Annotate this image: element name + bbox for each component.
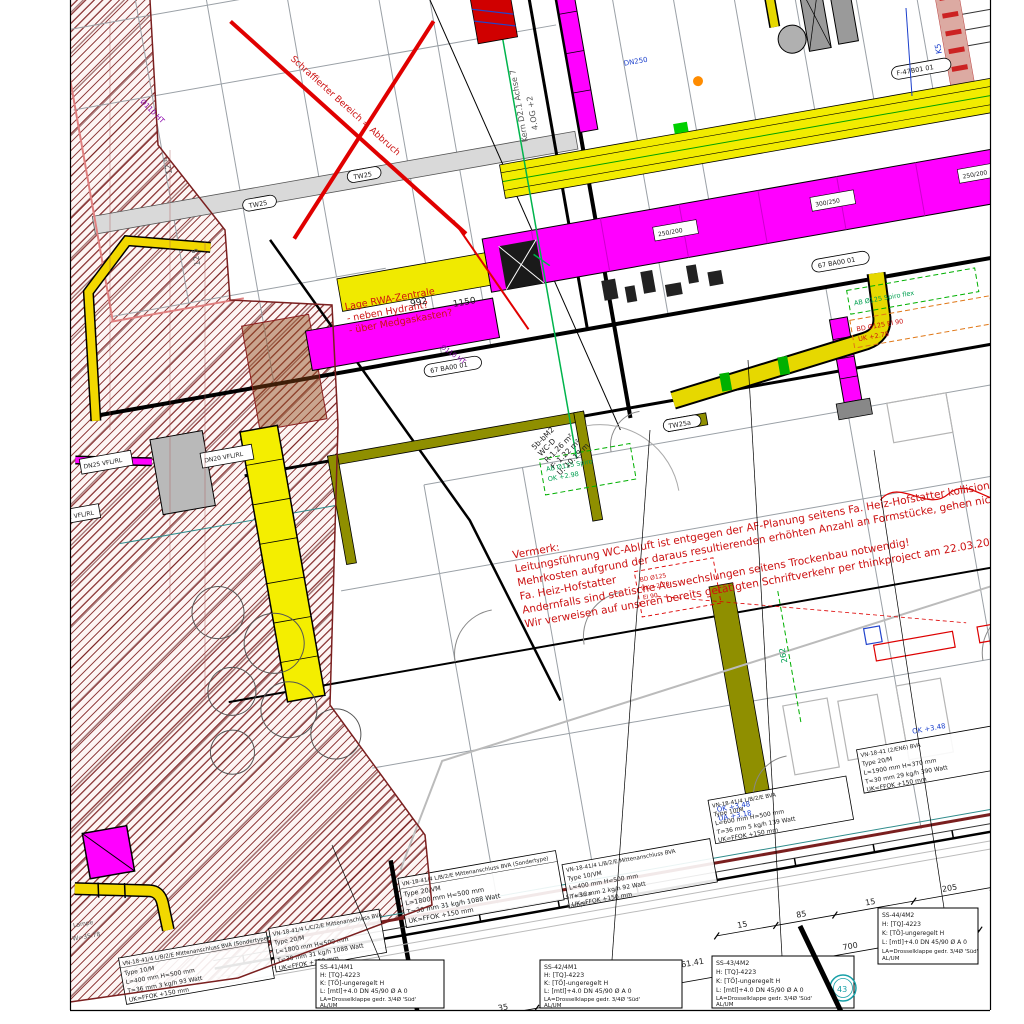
blue-k5: K5: [933, 43, 944, 55]
svg-text:SS-44/4M2: SS-44/4M2: [882, 912, 914, 919]
dim-6141: 61.41: [680, 957, 704, 970]
svg-text:15: 15: [864, 897, 876, 908]
svg-text:205: 205: [941, 882, 958, 894]
cad-plan-viewport: 250/200 300/250 250/200: [0, 0, 1024, 1024]
svg-text:H: [TQ]-4223: H: [TQ]-4223: [882, 921, 921, 928]
svg-text:L: [mtl]+4.0 DN 45/90 Ø A 0: L: [mtl]+4.0 DN 45/90 Ø A 0: [882, 939, 967, 946]
svg-text:SS-43/4M2: SS-43/4M2: [716, 960, 749, 967]
abbruch-note: Schraffierter Bereich = Abbruch: [288, 54, 402, 158]
rotated-plan: 250/200 300/250 250/200: [0, 0, 1024, 1024]
svg-text:700: 700: [842, 941, 859, 953]
radiator-label-6: VN-18-41 (2/EN6) BVA Type 20/M L=1900 mm…: [857, 725, 1008, 794]
yellow-riser-left: [240, 425, 325, 701]
svg-text:L: [mtl]+4.0 DN 45/90 Ø A 0: L: [mtl]+4.0 DN 45/90 Ø A 0: [320, 987, 408, 995]
plan-drawing: 250/200 300/250 250/200: [0, 0, 1024, 1024]
svg-text:LA=Drosselklappe gedr. 3/4Ø 'S: LA=Drosselklappe gedr. 3/4Ø 'Süd': [320, 996, 416, 1003]
svg-text:K: [TÖ]-ungeregelt H: K: [TÖ]-ungeregelt H: [716, 976, 780, 985]
svg-text:AL/UM: AL/UM: [320, 1003, 338, 1009]
radiator-label-1: VN-18-41/4 L/B/2/E Mittenanschluss BVA (…: [118, 932, 276, 1005]
svg-text:85: 85: [796, 909, 808, 920]
svg-text:H: [TQ]-4223: H: [TQ]-4223: [320, 972, 360, 979]
svg-text:K: [TÖ]-ungeregelt H: K: [TÖ]-ungeregelt H: [320, 978, 384, 987]
svg-text:L: [mtl]+4.0 DN 45/90 Ø A 0: L: [mtl]+4.0 DN 45/90 Ø A 0: [716, 986, 804, 994]
gray-leader: [367, 556, 1024, 870]
svg-text:AL/UM: AL/UM: [544, 1003, 562, 1009]
svg-text:SS-41/4M1: SS-41/4M1: [320, 964, 353, 971]
radiator-label-3: VN-18-41/4 L/B/2/E Mittenanschluss BVA (…: [398, 851, 564, 928]
svg-text:LA=Drosselklappe gedr. 3/4Ø 'S: LA=Drosselklappe gedr. 3/4Ø 'Süd': [882, 948, 978, 955]
yellow-pipe-topleft: [39, 227, 254, 528]
dim-262: 262: [778, 647, 790, 664]
misc-4: W=35.78: [72, 931, 101, 943]
misc-3: Lampe: [73, 919, 95, 929]
svg-text:SS-42/4M1: SS-42/4M1: [544, 964, 577, 971]
svg-text:H: [TQ]-4223: H: [TQ]-4223: [716, 969, 756, 976]
svg-text:H: [TQ]-4223: H: [TQ]-4223: [544, 972, 584, 979]
svg-text:15: 15: [736, 919, 748, 930]
grid-bubble-label: 43: [837, 985, 847, 994]
svg-text:L: [mtl]+4.0 DN 45/90 Ø A 0: L: [mtl]+4.0 DN 45/90 Ø A 0: [544, 987, 632, 995]
equipment-box-3: SS-43/4M2 H: [TQ]-4223 K: [TÖ]-ungeregel…: [712, 956, 854, 1008]
svg-text:K: [TÖ]-ungeregelt H: K: [TÖ]-ungeregelt H: [882, 930, 944, 937]
equipment-box-1: SS-41/4M1 H: [TQ]-4223 K: [TÖ]-ungeregel…: [316, 960, 444, 1009]
equipment-box-2: SS-42/4M1 H: [TQ]-4223 K: [TÖ]-ungeregel…: [540, 960, 682, 1009]
kern-label-2: 4.OG +2: [525, 95, 540, 131]
blue-dn250: DN250: [623, 56, 648, 68]
radiator-label-4: VN-18-41/4 L/B/2/E Mittenanschluss BVA T…: [562, 839, 718, 909]
svg-text:AL/UM: AL/UM: [716, 1002, 734, 1008]
svg-text:AL/UM: AL/UM: [882, 956, 900, 962]
svg-text:LA=Drosselklappe gedr. 3/4Ø 'S: LA=Drosselklappe gedr. 3/4Ø 'Süd': [716, 995, 812, 1002]
svg-text:LA=Drosselklappe gedr. 3/4Ø 'S: LA=Drosselklappe gedr. 3/4Ø 'Süd': [544, 996, 640, 1003]
equipment-box-4: SS-44/4M2 H: [TQ]-4223 K: [TÖ]-ungeregel…: [878, 908, 978, 964]
svg-text:K: [TÖ]-ungeregelt H: K: [TÖ]-ungeregelt H: [544, 978, 608, 987]
kern-label-group: Kern D2.1 Achse 7 4.OG +2: [508, 67, 541, 143]
purple-ht-note-2: Ø110 HT: [139, 98, 167, 126]
blue-survey-line: [906, 8, 912, 96]
teal-survey-line: [120, 505, 337, 543]
